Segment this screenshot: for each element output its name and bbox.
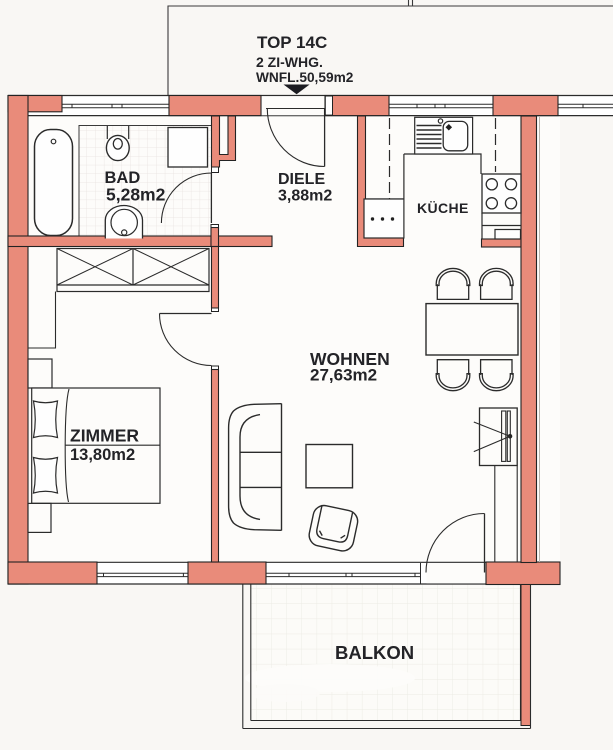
svg-text:3,88m2: 3,88m2 <box>278 188 332 205</box>
svg-text:BALKON: BALKON <box>335 642 414 663</box>
svg-text:DIELE: DIELE <box>278 171 325 188</box>
svg-text:5,28m2: 5,28m2 <box>106 185 166 205</box>
svg-text:ZIMMER: ZIMMER <box>70 426 139 446</box>
svg-text:TOP 14C: TOP 14C <box>257 33 327 52</box>
svg-text:13,80m2: 13,80m2 <box>70 446 135 464</box>
svg-text:27,63m2: 27,63m2 <box>310 366 377 385</box>
svg-text:2 ZI-WHG.: 2 ZI-WHG. <box>256 54 323 70</box>
svg-text:WNFL.50,59m2: WNFL.50,59m2 <box>256 70 354 85</box>
svg-text:KÜCHE: KÜCHE <box>417 200 469 216</box>
